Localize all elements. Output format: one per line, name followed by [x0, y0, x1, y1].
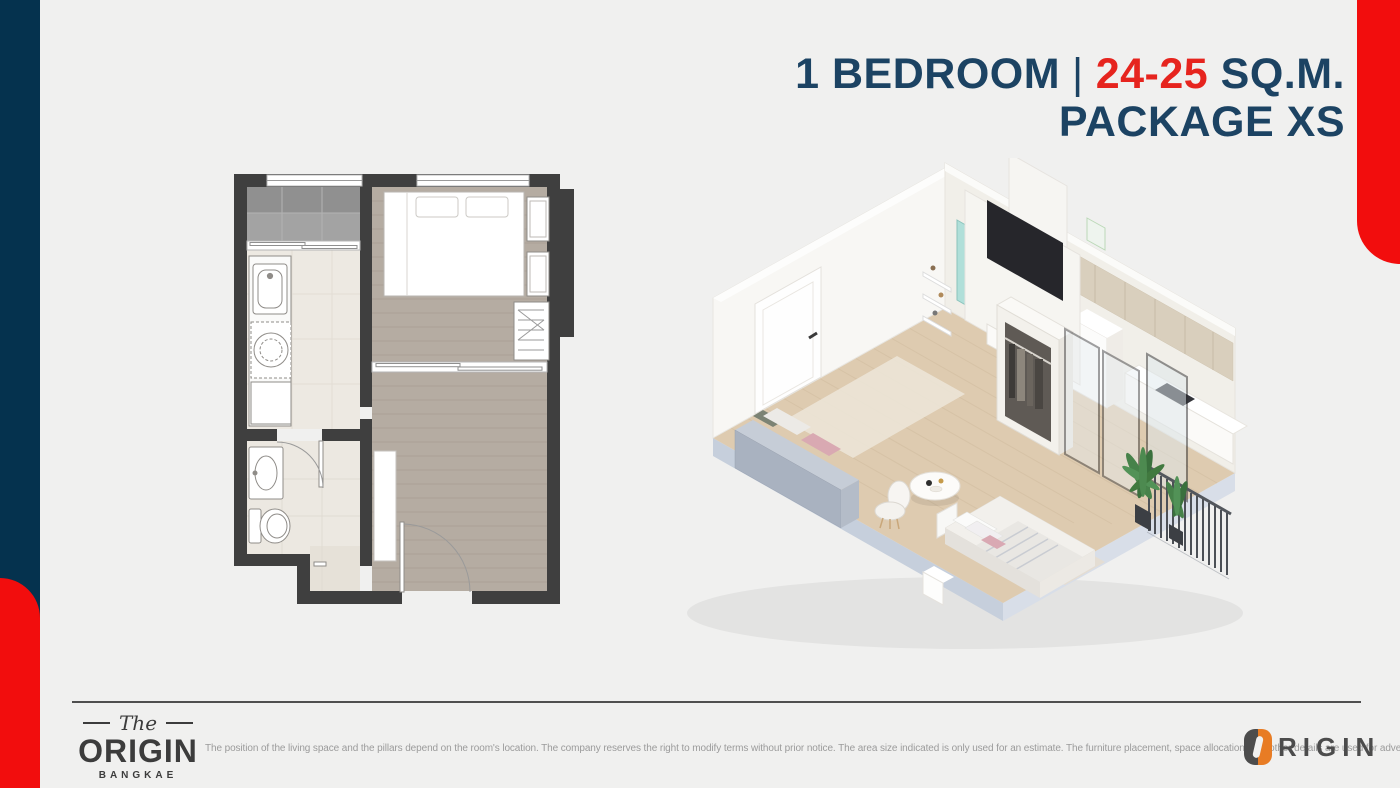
title-package: PACKAGE XS — [795, 98, 1345, 146]
origin-bangkae-logo: The ORIGIN BANGKAE — [56, 711, 220, 781]
floor-plan-2d — [222, 164, 578, 624]
title-unit: SQ.M. — [1221, 50, 1345, 98]
footer-divider — [72, 701, 1361, 703]
origin-corporate-logo: RIGIN — [1243, 728, 1380, 766]
origin-o-icon — [1243, 728, 1273, 766]
slide: 1 BEDROOM|24-25 SQ.M. PACKAGE XS — [0, 0, 1400, 788]
title-separator: | — [1060, 50, 1096, 98]
coffee-table — [910, 472, 960, 506]
logo-dash-right — [166, 722, 193, 724]
logo-origin-text: ORIGIN — [56, 735, 220, 767]
title-bedrooms: 1 BEDROOM — [795, 50, 1060, 98]
logo-location-text: BANGKAE — [56, 770, 220, 781]
top-right-red-shape — [1357, 0, 1400, 264]
page-title: 1 BEDROOM|24-25 SQ.M. PACKAGE XS — [795, 50, 1345, 146]
bottom-left-red-shape — [0, 578, 40, 788]
origin-letters: RIGIN — [1278, 732, 1380, 763]
room-render-3d — [635, 158, 1275, 663]
disclaimer-text: The position of the living space and the… — [205, 743, 1225, 754]
logo-the: The — [119, 711, 157, 735]
title-area: 24-25 — [1096, 50, 1208, 98]
logo-dash-left — [83, 722, 110, 724]
